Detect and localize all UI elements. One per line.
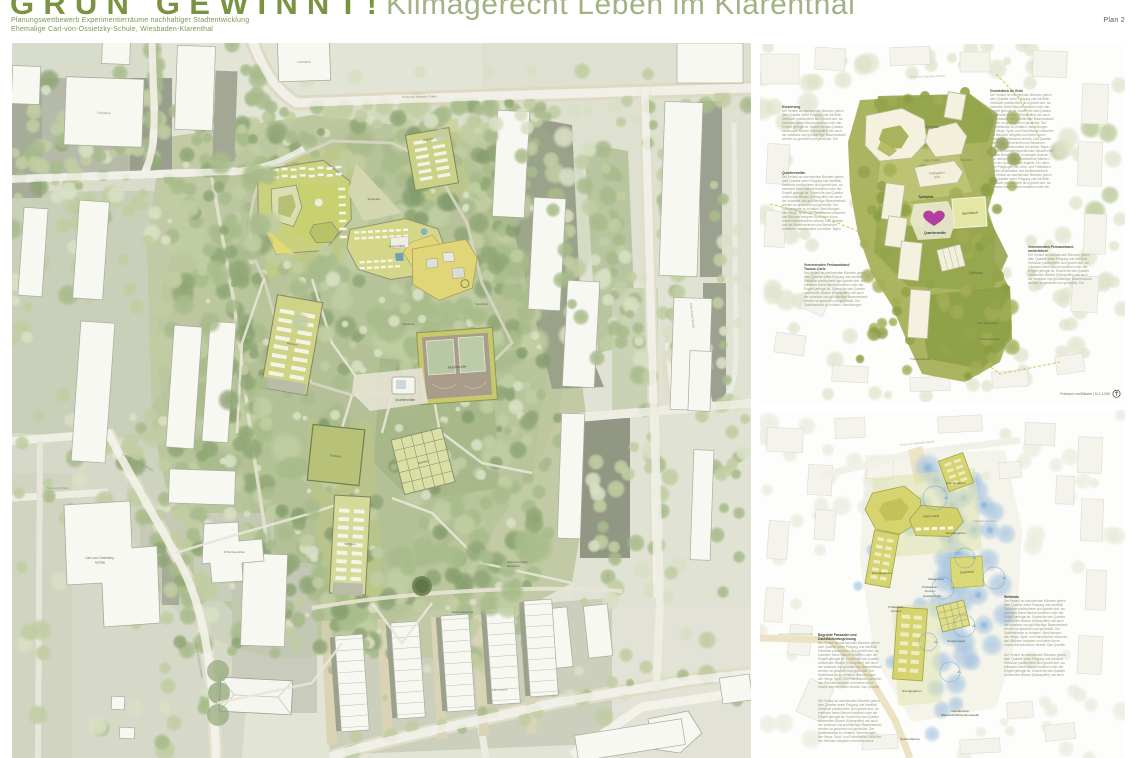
svg-text:Energiegarten: Energiegarten — [872, 571, 892, 575]
svg-text:Sperberbäume: Sperberbäume — [900, 737, 920, 741]
svg-text:werden so gesichert und geschü: werden so gesichert und geschützt. Der — [1028, 281, 1085, 285]
svg-text:brache Interventionen erlaubt.: brache Interventionen erlaubt. Das Quart… — [818, 685, 880, 689]
svg-text:Abenteuerwald-: Abenteuerwald- — [977, 321, 998, 325]
svg-text:Solarpergola: Solarpergola — [947, 639, 965, 643]
svg-text:Spielplatz: Spielplatz — [925, 125, 939, 129]
svg-text:KiTa: KiTa — [934, 175, 940, 179]
svg-text:Päd.KiTa: Päd.KiTa — [960, 158, 972, 162]
svg-text:Freiraum und Bäume | M 1:1.000: Freiraum und Bäume | M 1:1.000 — [1060, 392, 1110, 396]
svg-text:Spielbestands zu erhalten. Bem: Spielbestands zu erhalten. Bemühungen — [804, 303, 862, 307]
svg-text:Spielplatz: Spielplatz — [919, 195, 934, 199]
svg-text:entweder keine Bäume bestehen: entweder keine Bäume bestehen oder der — [990, 185, 1050, 189]
svg-text:brache Interventionen erlaubt.: brache Interventionen erlaubt. Das Quart… — [1004, 643, 1066, 647]
svg-text:Quartiersmitte: Quartiersmitte — [923, 594, 942, 598]
svg-text:(Baumhainflächenklimawald): (Baumhainflächenklimawald) — [941, 713, 979, 717]
svg-text:den Bäumen integriert und klei: den Bäumen integriert und kleine kurze — [818, 739, 874, 743]
svg-text:profitieren insbesondere an he: profitieren insbesondere an heißen Tagen — [782, 227, 841, 231]
svg-text:Haus Carlo: Haus Carlo — [923, 158, 940, 163]
svg-text:rahmenden Bäume (Klimapuffer): rahmenden Bäume (Klimapuffer) wie auch — [1004, 673, 1064, 677]
svg-text:Naturwäldchen: Naturwäldchen — [980, 337, 1000, 341]
svg-text:werden so gesichert und geschü: werden so gesichert und geschützt. Der — [782, 137, 839, 141]
svg-text:Quartiersmitte: Quartiersmitte — [924, 231, 946, 235]
svg-text:Energiegarten: Energiegarten — [946, 481, 966, 485]
svg-text:Energiegarten: Energiegarten — [946, 531, 966, 535]
svg-text:brunnen: brunnen — [891, 609, 902, 613]
svg-text:Spielplatz: Spielplatz — [969, 271, 983, 275]
svg-text:brunnen: brunnen — [925, 589, 936, 593]
svg-text:Energiegarten: Energiegarten — [902, 689, 922, 693]
svg-text:Carl-von-Ossietzky-Straße: Carl-von-Ossietzky-Straße — [778, 632, 814, 636]
svg-text:Haus Carlo: Haus Carlo — [923, 514, 939, 519]
svg-text:Kaltluftschneisen: Kaltluftschneisen — [974, 519, 997, 523]
svg-text:Trockenbäume: Trockenbäume — [910, 357, 930, 361]
